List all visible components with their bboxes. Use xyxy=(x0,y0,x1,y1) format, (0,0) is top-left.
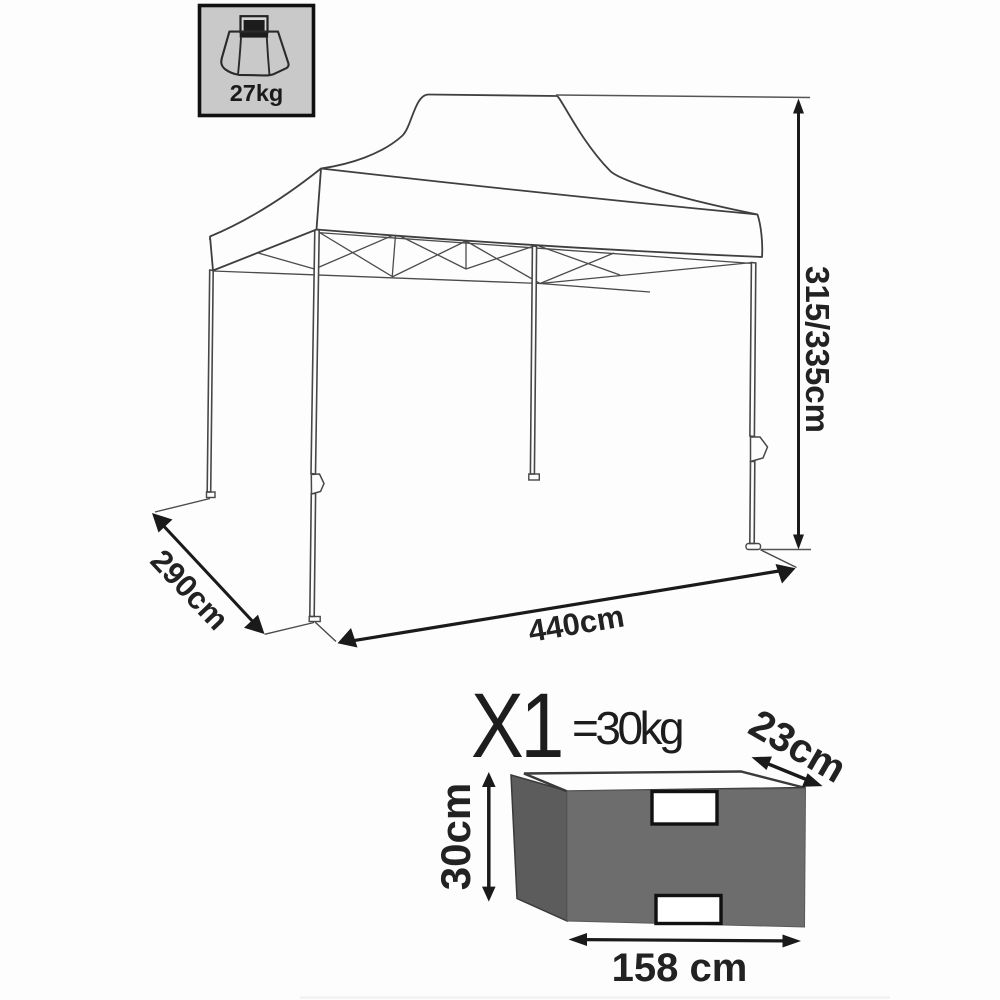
svg-text:X1: X1 xyxy=(471,674,561,777)
svg-text:315/335cm: 315/335cm xyxy=(799,266,836,433)
svg-text:158 cm: 158 cm xyxy=(612,946,748,990)
svg-text:27kg: 27kg xyxy=(230,80,284,106)
svg-text:30cm: 30cm xyxy=(432,783,479,890)
svg-text:440cm: 440cm xyxy=(526,598,627,648)
svg-text:=30kg: =30kg xyxy=(572,702,682,754)
